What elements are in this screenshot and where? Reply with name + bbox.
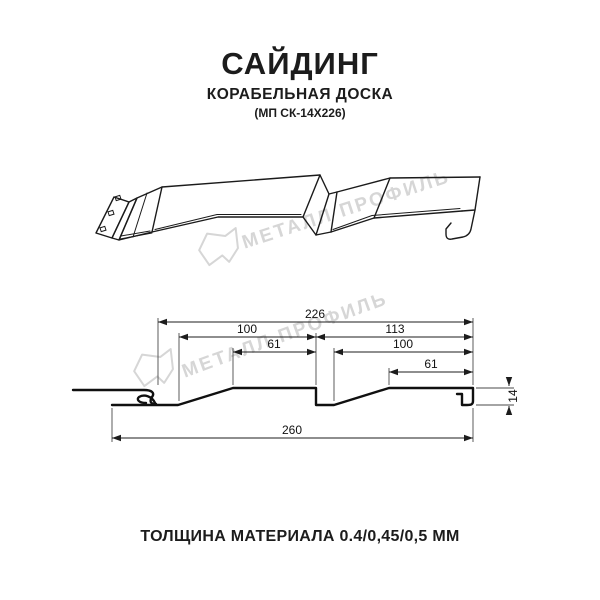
profile-section-lines — [73, 388, 473, 405]
product-title: САЙДИНГ — [0, 46, 600, 82]
cross-section-drawing: 226 100 113 61 100 61 260 14 — [55, 290, 530, 455]
panel-bottom-outline — [152, 211, 462, 235]
product-model-code: (МП СК-14Х226) — [0, 106, 600, 120]
dim-label-left-board-flat: 61 — [267, 337, 281, 351]
dim-label-overall-bottom: 260 — [282, 423, 302, 437]
product-drawing-page: САЙДИНГ КОРАБЕЛЬНАЯ ДОСКА (МП СК-14Х226)… — [0, 0, 600, 600]
dim-label-right-board-inner: 100 — [393, 337, 413, 351]
main-profile-line — [112, 388, 473, 405]
dim-label-profile-height: 14 — [506, 389, 520, 403]
dimension-lines — [112, 322, 509, 438]
right-j-hook — [446, 210, 475, 239]
curl-fold-lines — [120, 231, 152, 239]
dim-label-left-board-total: 100 — [237, 322, 257, 336]
profile-3d-drawing — [80, 150, 500, 280]
panel-3d-lines — [96, 175, 480, 240]
dim-label-right-board-total: 113 — [385, 322, 404, 336]
product-subtitle: КОРАБЕЛЬНАЯ ДОСКА — [0, 86, 600, 104]
dim-label-right-board-flat: 61 — [424, 357, 438, 371]
dim-label-overall-top: 226 — [305, 307, 325, 321]
panel-top-outline — [162, 175, 480, 194]
step-edges — [303, 175, 390, 235]
thickness-note: ТОЛЩИНА МАТЕРИАЛА 0.4/0,45/0,5 ММ — [0, 528, 600, 546]
front-edge-inner-right — [333, 209, 460, 230]
right-end-edge — [462, 177, 480, 211]
